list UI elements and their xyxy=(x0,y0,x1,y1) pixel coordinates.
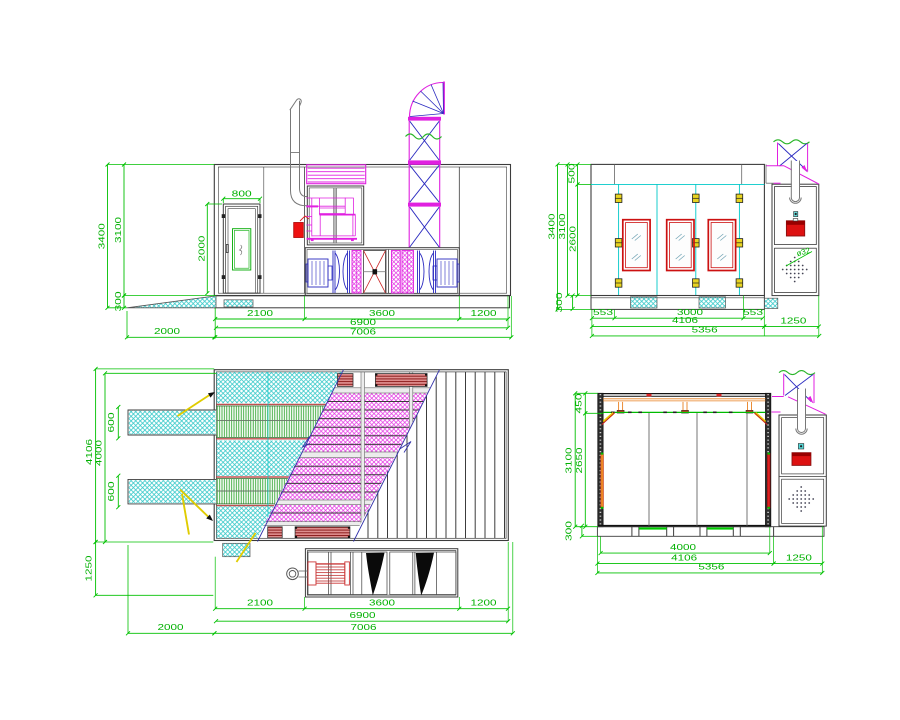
svg-text:7006: 7006 xyxy=(351,623,378,632)
svg-text:4106: 4106 xyxy=(672,316,699,325)
svg-text:300: 300 xyxy=(564,520,573,541)
svg-text:6900: 6900 xyxy=(350,611,377,620)
svg-text:4000: 4000 xyxy=(670,543,697,552)
svg-text:3400: 3400 xyxy=(548,213,557,240)
svg-text:600: 600 xyxy=(107,412,116,433)
svg-text:300: 300 xyxy=(114,291,123,312)
svg-text:600: 600 xyxy=(107,481,116,502)
svg-text:5356: 5356 xyxy=(692,325,719,334)
svg-text:3600: 3600 xyxy=(369,599,396,608)
svg-text:2600: 2600 xyxy=(569,225,578,252)
svg-text:1200: 1200 xyxy=(471,599,498,608)
svg-text:6900: 6900 xyxy=(350,318,377,327)
svg-text:3100: 3100 xyxy=(565,447,574,474)
svg-text:3100: 3100 xyxy=(558,213,567,240)
svg-text:1250: 1250 xyxy=(780,316,807,325)
svg-text:553: 553 xyxy=(593,308,614,317)
svg-text:2000: 2000 xyxy=(158,623,185,632)
svg-text:3100: 3100 xyxy=(114,216,123,243)
svg-text:1250: 1250 xyxy=(786,553,813,562)
svg-text:3600: 3600 xyxy=(369,309,396,318)
svg-text:1200: 1200 xyxy=(471,309,498,318)
svg-text:300: 300 xyxy=(555,292,564,313)
svg-text:2000: 2000 xyxy=(198,235,207,262)
svg-text:2000: 2000 xyxy=(154,327,181,336)
svg-text:800: 800 xyxy=(232,190,253,199)
svg-text:5356: 5356 xyxy=(698,563,725,572)
svg-text:1250: 1250 xyxy=(85,555,94,582)
svg-text:2100: 2100 xyxy=(247,599,274,608)
svg-text:553: 553 xyxy=(743,308,764,317)
svg-text:2100: 2100 xyxy=(247,309,274,318)
svg-text:3400: 3400 xyxy=(98,223,107,250)
svg-text:4106: 4106 xyxy=(85,438,94,465)
svg-text:7006: 7006 xyxy=(350,327,377,336)
svg-text:4000: 4000 xyxy=(95,439,104,466)
svg-text:500: 500 xyxy=(568,163,577,184)
svg-text:2650: 2650 xyxy=(575,447,584,474)
svg-text:4106: 4106 xyxy=(671,553,698,562)
